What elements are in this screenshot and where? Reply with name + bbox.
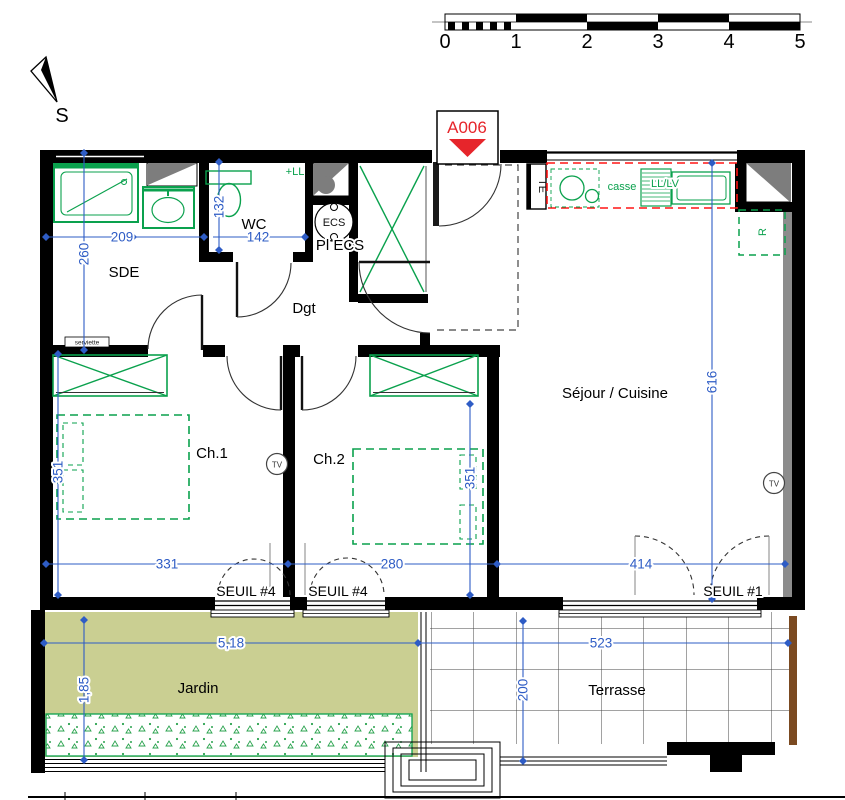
outdoor-areas bbox=[28, 612, 845, 800]
ducts bbox=[147, 163, 790, 202]
room-label-jardin: Jardin bbox=[178, 680, 219, 697]
scale-seg bbox=[587, 22, 658, 30]
unit-number: A006 bbox=[447, 118, 487, 137]
wood-edge bbox=[789, 616, 797, 745]
scale-bar: 0 1 2 3 4 5 bbox=[432, 14, 812, 53]
towel-radiator: serviette bbox=[65, 337, 109, 347]
room-label-ch1: Ch.1 bbox=[196, 445, 228, 462]
wall-segment bbox=[203, 345, 225, 357]
room-label-ch2: Ch.2 bbox=[313, 451, 345, 468]
plus-ll-label: +LL bbox=[286, 166, 305, 178]
room-label-dgt: Dgt bbox=[292, 300, 316, 317]
scale-tick-2: 2 bbox=[581, 31, 592, 53]
casserolier-label: casse bbox=[608, 181, 637, 193]
door-arc bbox=[148, 295, 202, 349]
tv-outlet: TV bbox=[267, 454, 288, 475]
floorplan-page: 0 1 2 3 4 5 S bbox=[0, 0, 845, 800]
scale-tick-0: 0 bbox=[439, 31, 450, 53]
dim-jardin-depth: 1,85 bbox=[77, 677, 92, 703]
towel-radiator-label: serviette bbox=[75, 340, 100, 347]
ch1-closet bbox=[53, 355, 167, 396]
room-label-sejour: Séjour / Cuisine bbox=[562, 385, 668, 402]
room-label-terrasse: Terrasse bbox=[588, 682, 646, 699]
dim-ch2-height: 351 bbox=[463, 467, 478, 490]
ch1-bed bbox=[57, 415, 189, 519]
scale-seg bbox=[658, 14, 729, 22]
tv-outlet: TV bbox=[764, 473, 785, 494]
terrasse-edge-wall-step bbox=[710, 755, 742, 772]
terrasse-tiles bbox=[430, 612, 790, 744]
entrance-door-leaf bbox=[433, 162, 439, 226]
wall-segment bbox=[31, 610, 45, 773]
burner-icon bbox=[586, 190, 599, 203]
compass-south-label: S bbox=[55, 105, 68, 127]
ecs-label: ECS bbox=[323, 217, 346, 229]
fridge-label: R bbox=[757, 228, 769, 236]
burner-icon bbox=[560, 176, 584, 200]
wall-segment bbox=[290, 597, 307, 610]
dim-wc-height: 132 bbox=[212, 196, 227, 219]
dim-jardin-width: 5,18 bbox=[218, 636, 244, 651]
entry-zone-outline bbox=[432, 165, 518, 330]
water-heater: ECS bbox=[315, 203, 353, 241]
cooktop-outline bbox=[551, 169, 599, 207]
room-label-pl-ecs: Pl ECS bbox=[316, 237, 364, 254]
door-arc bbox=[302, 356, 356, 410]
room-label-wc: WC bbox=[242, 216, 267, 233]
scale-seg bbox=[729, 22, 800, 30]
washer-drum-icon bbox=[317, 176, 335, 194]
terrasse-edge-wall bbox=[667, 742, 775, 755]
entrance-door-arc bbox=[439, 164, 501, 226]
wall-segment bbox=[792, 150, 805, 610]
wall-segment bbox=[385, 597, 563, 610]
dim-terrasse-depth: 200 bbox=[516, 679, 531, 702]
dim-sde-height: 260 bbox=[77, 243, 92, 266]
wall-segment bbox=[305, 163, 313, 262]
entrance-marker: A006 bbox=[437, 111, 498, 164]
dim-ch1-width: 331 bbox=[156, 557, 179, 572]
wall-segment bbox=[487, 345, 499, 597]
dim-ch2-width: 280 bbox=[381, 557, 404, 572]
tv-label: TV bbox=[272, 461, 283, 470]
shower bbox=[54, 164, 138, 222]
ll-lv-label: LL/LV bbox=[651, 178, 680, 190]
scale-tick-1: 1 bbox=[510, 31, 521, 53]
floorplan-drawing: 0 1 2 3 4 5 S bbox=[0, 0, 845, 800]
dim-sejour-height: 616 bbox=[705, 371, 720, 394]
wall-segment bbox=[500, 150, 547, 163]
kitchen-sink bbox=[672, 172, 730, 204]
door-arc bbox=[237, 263, 291, 317]
ch2-bed bbox=[353, 449, 483, 544]
washbasin bbox=[143, 187, 194, 228]
electrical-panel: TE bbox=[527, 164, 548, 209]
north-arrow: S bbox=[31, 57, 69, 127]
wall-insulation-band bbox=[783, 212, 792, 597]
door-arc bbox=[227, 356, 281, 410]
wall-segment bbox=[209, 252, 233, 262]
dim-ch1-height: 351 bbox=[51, 461, 66, 484]
wall-segment bbox=[40, 150, 53, 610]
dim-sejour-width: 414 bbox=[630, 557, 653, 572]
threshold-label: SEUIL #4 bbox=[216, 583, 276, 599]
threshold-label: SEUIL #1 bbox=[703, 583, 763, 599]
tv-label: TV bbox=[769, 480, 780, 489]
scale-tick-5: 5 bbox=[794, 31, 805, 53]
hedge-pattern bbox=[46, 714, 412, 756]
scale-tick-3: 3 bbox=[652, 31, 663, 53]
ch2-closet bbox=[370, 355, 478, 396]
wall-segment bbox=[757, 597, 805, 610]
room-label-sde: SDE bbox=[109, 264, 140, 281]
dim-terrasse-width: 523 bbox=[590, 636, 613, 651]
dim-sde-width: 209 bbox=[111, 230, 134, 245]
threshold-label: SEUIL #4 bbox=[308, 583, 368, 599]
entry-closet bbox=[360, 166, 426, 292]
fridge: R bbox=[739, 210, 785, 255]
wall-segment bbox=[199, 163, 209, 262]
wall-segment bbox=[40, 597, 215, 610]
scale-seg bbox=[516, 14, 587, 22]
scale-tick-4: 4 bbox=[723, 31, 734, 53]
wall-segment bbox=[420, 333, 430, 345]
